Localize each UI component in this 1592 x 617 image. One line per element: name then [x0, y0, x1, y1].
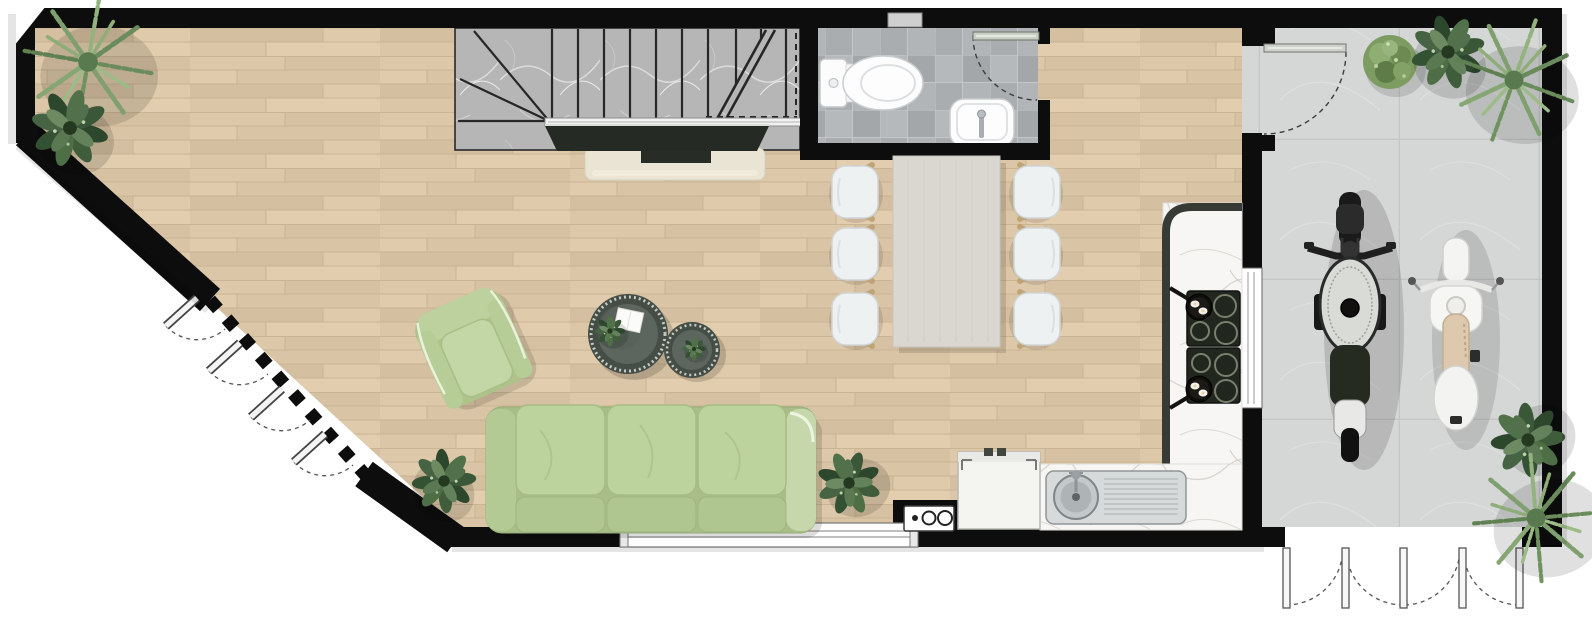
wall-bathroom-right-top [1038, 28, 1050, 44]
door-swing-arc [1405, 549, 1460, 605]
dining-chair [1009, 224, 1063, 285]
sofa-back-cushion [516, 497, 605, 532]
wall-bathroom-left [800, 28, 818, 160]
bathroom-doorway [1038, 44, 1050, 100]
wall-bottom-garage-left [1262, 527, 1285, 547]
kitchen-window [1242, 262, 1262, 414]
sofa-seat-cushion [698, 405, 786, 495]
door-swing-arc [166, 326, 225, 340]
sink-counter [1040, 464, 1242, 530]
sofa [486, 405, 822, 538]
sofa-back-cushion [607, 497, 696, 532]
door-leaf [1459, 548, 1466, 608]
moto-headlight [1341, 241, 1359, 259]
toilet [820, 56, 923, 110]
hand-basin [950, 99, 1014, 147]
door-leaf [1283, 548, 1290, 608]
wall-bathroom-right-bottom [1038, 100, 1050, 160]
floor-plan-canvas [0, 0, 1592, 617]
kitchen-sink [1046, 471, 1186, 525]
scooter-taillight [1450, 416, 1462, 424]
door-swing-arc [1346, 549, 1403, 605]
door-leaf [1400, 548, 1407, 608]
basin-faucet [979, 116, 984, 138]
console-shelf [592, 170, 758, 176]
wall-outlet-panel [904, 506, 954, 531]
sofa-seat-cushion [516, 405, 605, 495]
appliance-handle [984, 448, 993, 456]
door-swing-arc [251, 417, 310, 431]
tv-stand [641, 151, 711, 163]
moto-rear-wheel [1341, 428, 1359, 462]
sofa-arm-left [486, 409, 516, 531]
dining-chair [829, 289, 883, 350]
wall-garage-left-mid [1242, 133, 1262, 270]
scooter-mirror [1496, 277, 1504, 285]
dining-chair [1009, 289, 1063, 350]
dining-chair [829, 162, 883, 223]
door-leaf [1342, 548, 1349, 608]
dining-set [829, 156, 1063, 353]
door-swing-arc [294, 462, 353, 476]
sofa-back-cushion [698, 497, 786, 532]
moto-fender [1336, 204, 1364, 234]
door-swing-arc [209, 371, 268, 385]
kitchen-island-counter [1163, 203, 1242, 505]
garage-doorway [1242, 46, 1262, 133]
bathroom-niche-window [888, 13, 922, 27]
wall-garage-mid-stub [1242, 135, 1275, 151]
dining-chair [829, 224, 883, 285]
tv [545, 126, 769, 151]
dining-chair [1009, 162, 1063, 223]
wall-garage-top-stub [1242, 8, 1275, 46]
scooter-mirror [1408, 277, 1416, 285]
garage-folding-doors [1283, 548, 1523, 608]
scooter-front-fender [1443, 238, 1469, 282]
floor-plan [0, 0, 1592, 617]
under-counter-appliance [958, 448, 1040, 529]
wall-top [16, 8, 1562, 28]
moto-seat [1330, 345, 1370, 407]
door-swing-arc [1286, 549, 1343, 605]
dining-table [893, 156, 1000, 347]
wall-garage-left-low [1242, 408, 1262, 547]
scooter-headset [1447, 297, 1465, 315]
appliance-handle [997, 448, 1006, 456]
